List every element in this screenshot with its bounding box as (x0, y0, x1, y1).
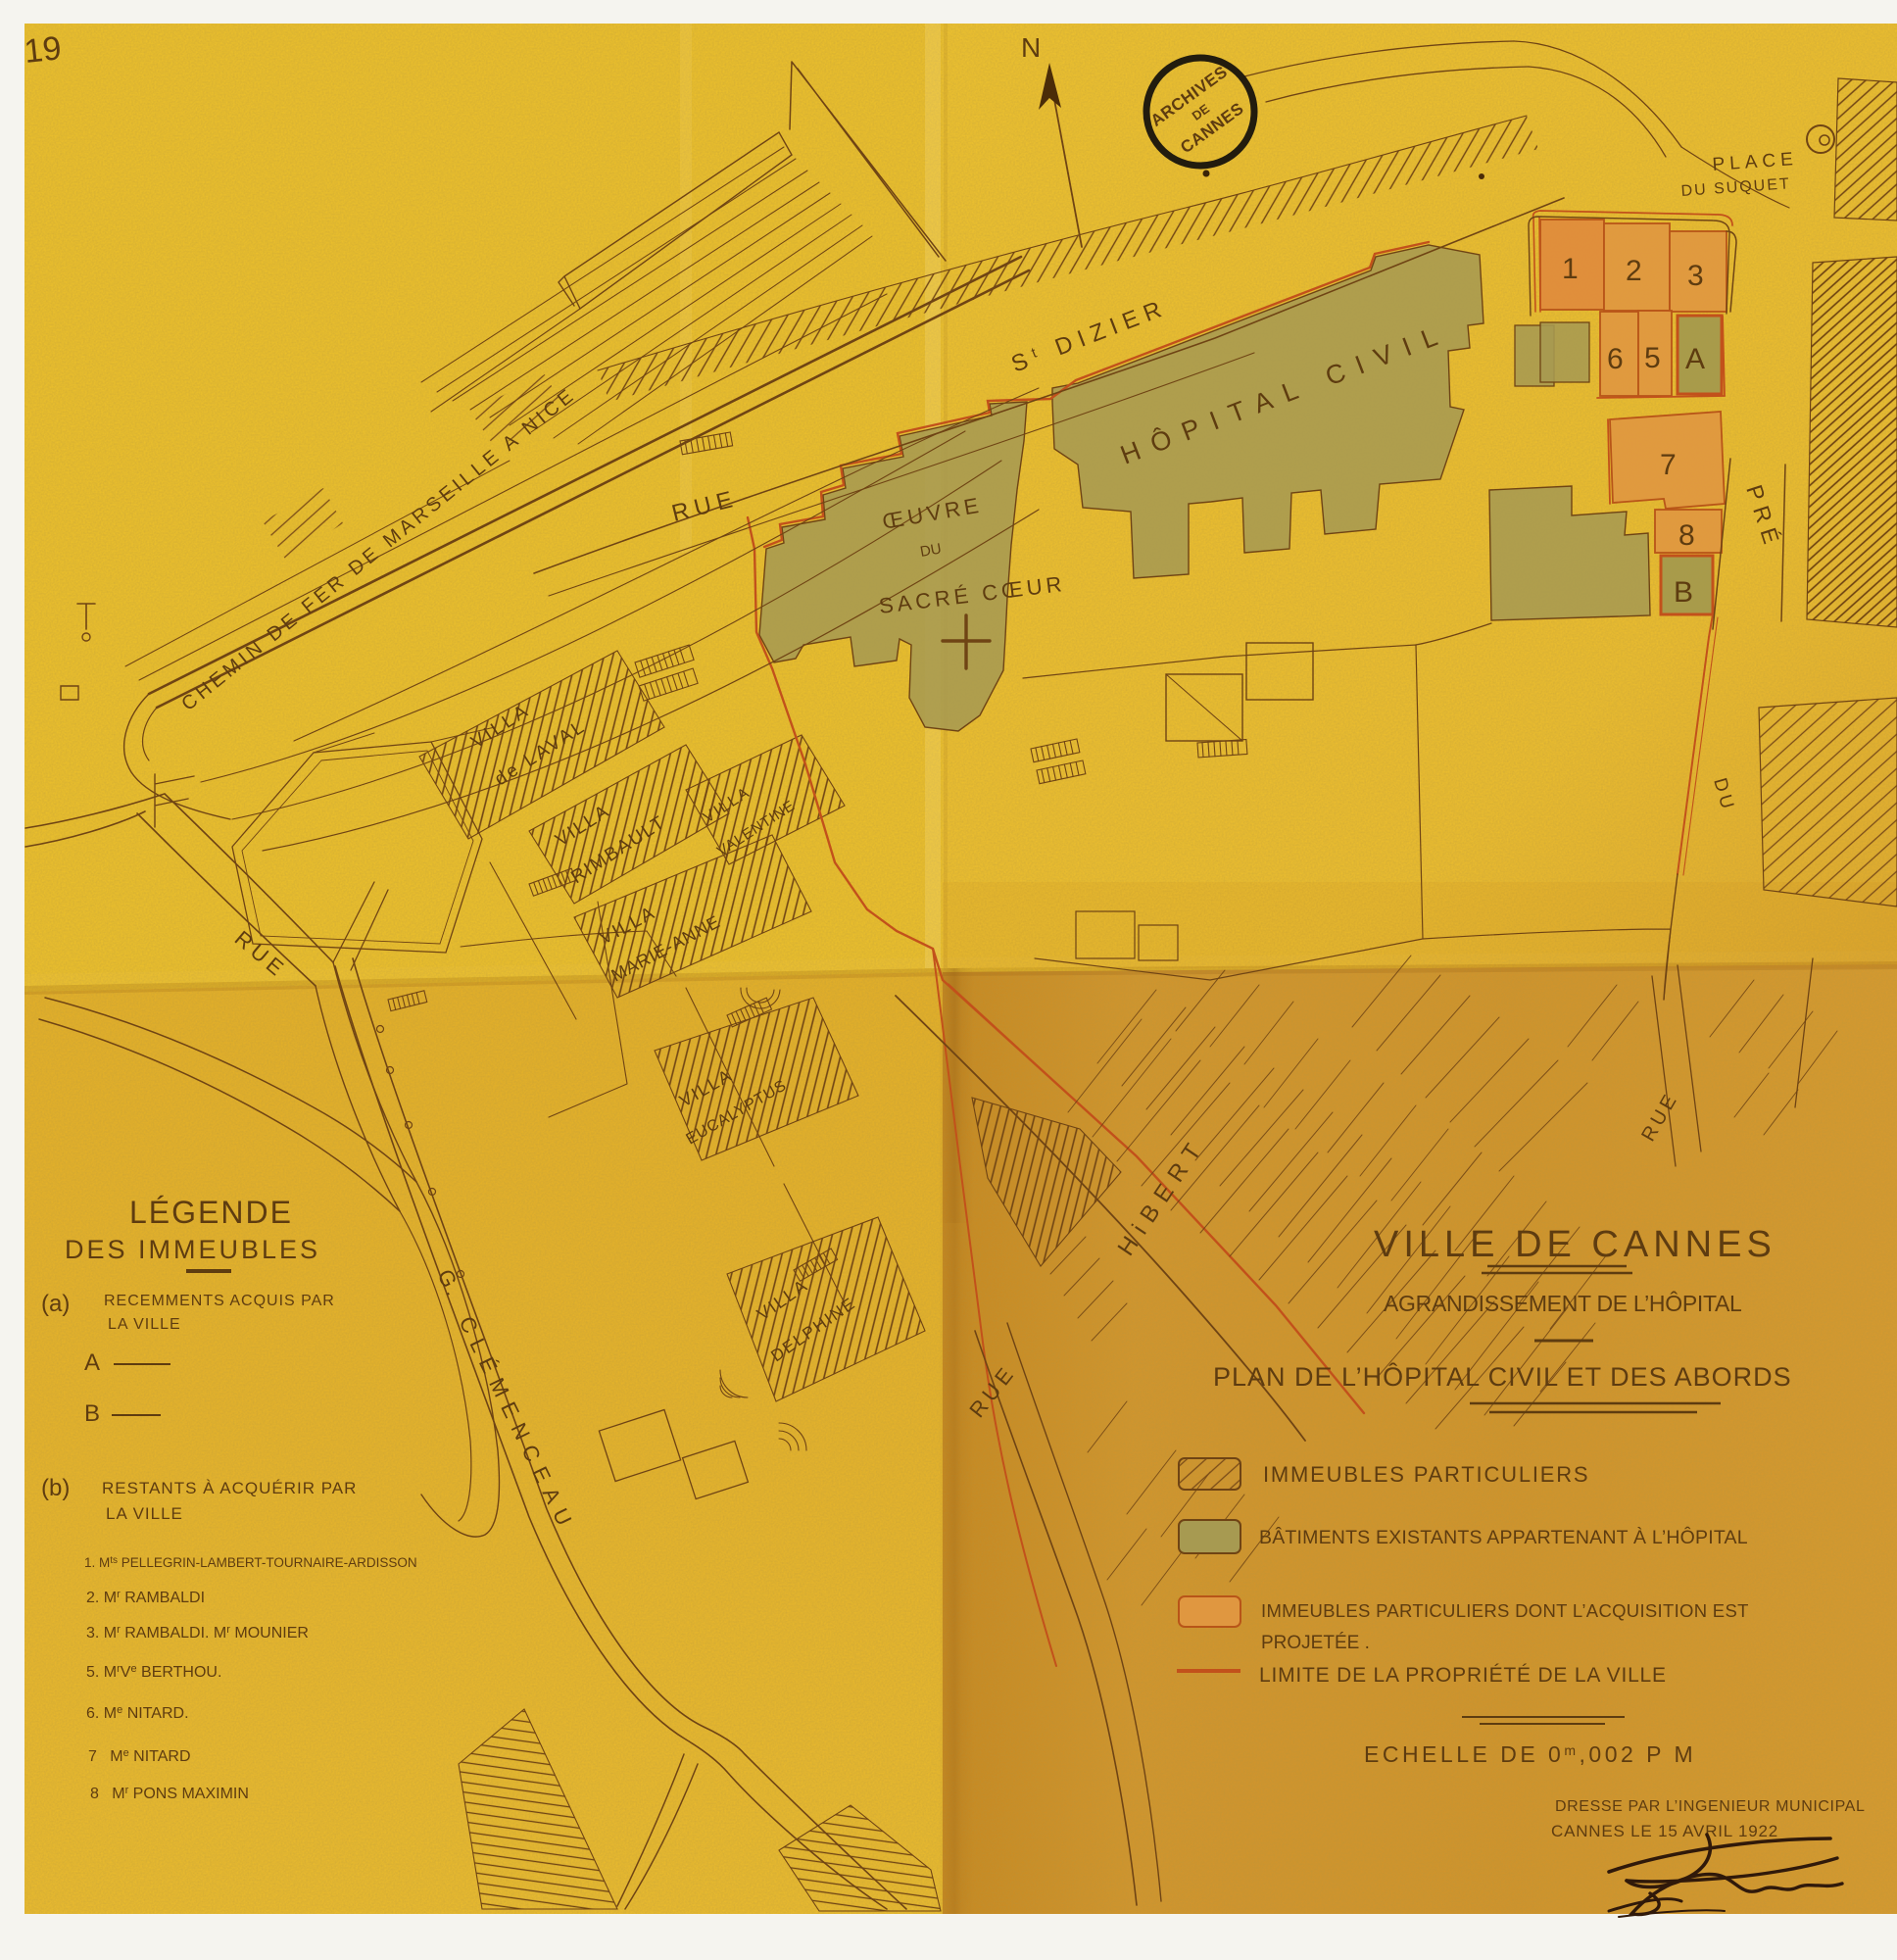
svg-text:7 Me NITARD: 7 Me NITARD (88, 1747, 191, 1765)
svg-text:7: 7 (1660, 449, 1677, 481)
svg-text:RESTANTS À ACQUÉRIR PAR: RESTANTS À ACQUÉRIR PAR (102, 1479, 357, 1497)
svg-text:PROJETÉE .: PROJETÉE . (1261, 1633, 1370, 1653)
svg-text:RECEMMENTS ACQUIS PAR: RECEMMENTS ACQUIS PAR (104, 1293, 335, 1309)
svg-text:VILLE DE CANNES: VILLE DE CANNES (1374, 1224, 1776, 1265)
svg-text:LIMITE DE LA PROPRIÉTÉ DE LA V: LIMITE DE LA PROPRIÉTÉ DE LA VILLE (1259, 1664, 1667, 1687)
svg-text:N: N (1021, 32, 1041, 63)
svg-text:3. Mr RAMBALDI. Mr MOUNIER: 3. Mr RAMBALDI. Mr MOUNIER (86, 1624, 309, 1641)
svg-text:19: 19 (23, 29, 64, 71)
svg-text:2. Mr RAMBALDI: 2. Mr RAMBALDI (86, 1589, 205, 1606)
svg-text:CANNES LE 15 AVRIL 1922: CANNES LE 15 AVRIL 1922 (1551, 1822, 1778, 1840)
svg-text:LA VILLE: LA VILLE (106, 1504, 183, 1523)
svg-text:A: A (1685, 343, 1705, 375)
svg-text:1: 1 (1562, 253, 1579, 285)
svg-text:B: B (84, 1400, 100, 1427)
svg-text:2: 2 (1626, 255, 1642, 287)
svg-text:LA VILLE: LA VILLE (108, 1316, 181, 1333)
svg-text:8 Mr PONS MAXIMIN: 8 Mr PONS MAXIMIN (90, 1785, 249, 1802)
svg-text:ECHELLE DE 0m,002 P M: ECHELLE DE 0m,002 P M (1364, 1741, 1696, 1767)
svg-text:DES IMMEUBLES: DES IMMEUBLES (65, 1235, 320, 1264)
svg-text:AGRANDISSEMENT DE L’HÔPITAL: AGRANDISSEMENT DE L’HÔPITAL (1384, 1290, 1742, 1316)
svg-text:(a): (a) (41, 1291, 70, 1317)
svg-text:(b): (b) (41, 1475, 70, 1501)
svg-text:BÂTIMENTS EXISTANTS APPARTENAN: BÂTIMENTS EXISTANTS APPARTENANT À L’HÔPI… (1259, 1526, 1748, 1548)
svg-text:DRESSE PAR L’INGENIEUR MUNICIP: DRESSE PAR L’INGENIEUR MUNICIPAL (1555, 1798, 1865, 1815)
svg-text:LÉGENDE: LÉGENDE (129, 1195, 293, 1230)
svg-text:6: 6 (1607, 343, 1624, 375)
svg-text:6. Me NITARD.: 6. Me NITARD. (86, 1704, 189, 1722)
svg-text:IMMEUBLES PARTICULIERS: IMMEUBLES PARTICULIERS (1263, 1462, 1589, 1487)
svg-text:A: A (84, 1349, 100, 1376)
svg-text:5: 5 (1644, 342, 1661, 374)
svg-text:1. Mts PELLEGRIN-LAMBERT-TOURN: 1. Mts PELLEGRIN-LAMBERT-TOURNAIRE-ARDIS… (84, 1555, 417, 1570)
svg-text:PLAN DE L’HÔPITAL CIVIL ET DES: PLAN DE L’HÔPITAL CIVIL ET DES ABORDS (1213, 1361, 1792, 1392)
svg-text:3: 3 (1687, 260, 1704, 292)
svg-text:B: B (1674, 576, 1693, 609)
svg-text:5. MrVe BERTHOU.: 5. MrVe BERTHOU. (86, 1663, 221, 1681)
svg-text:IMMEUBLES PARTICULIERS DONT L’: IMMEUBLES PARTICULIERS DONT L’ACQUISITIO… (1261, 1600, 1749, 1621)
svg-text:8: 8 (1678, 519, 1695, 552)
